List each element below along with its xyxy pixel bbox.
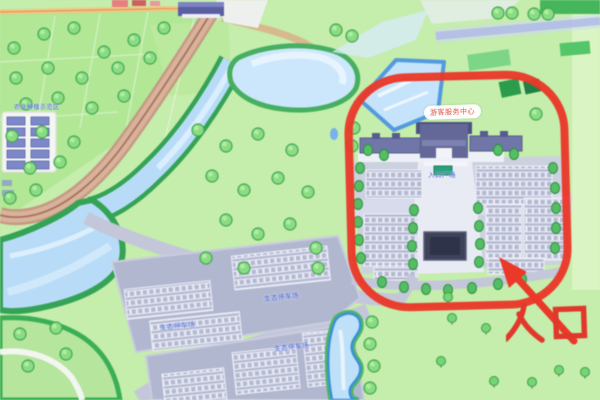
- park-map-image: 游客服务中心 入口广场 生态停车场 生态停车场 生态停车场 农业种植示范区 入口: [0, 0, 600, 400]
- entrance-label-glyphs: [506, 303, 592, 345]
- entrance-label: 入口: [506, 303, 592, 349]
- compound-label: 农业种植示范区: [14, 102, 60, 111]
- visitor-center-label: 游客服务中心: [430, 107, 475, 117]
- visitor-center-banner: 游客服务中心: [424, 104, 481, 120]
- plaza-label: 入口广场: [428, 169, 456, 179]
